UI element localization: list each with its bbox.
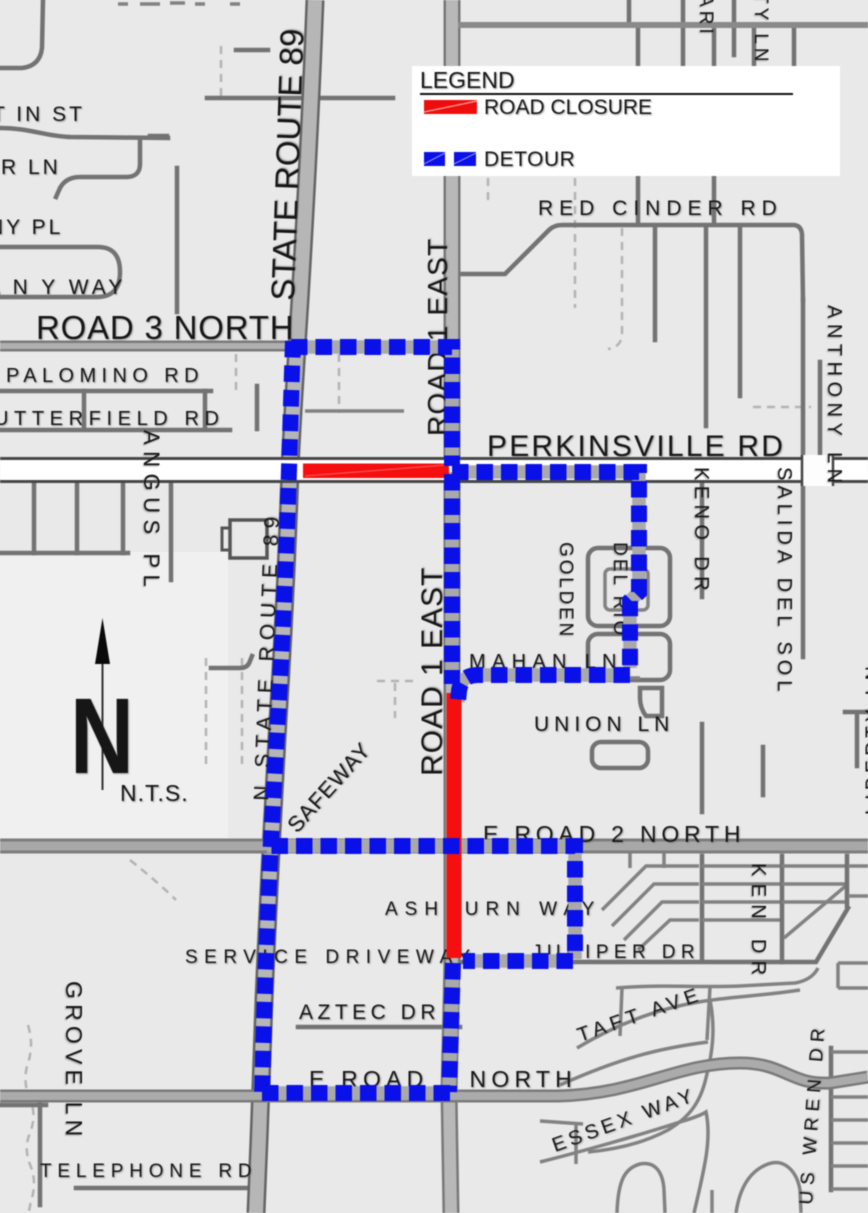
svg-text:KENO DR: KENO DR bbox=[690, 467, 712, 596]
svg-text:ANGUS PL: ANGUS PL bbox=[139, 430, 164, 593]
svg-text:ROAD 3 NORTH: ROAD 3 NORTH bbox=[36, 309, 294, 346]
svg-text:AZTEC DR: AZTEC DR bbox=[299, 1001, 440, 1024]
svg-text:LIBERTY LN: LIBERTY LN bbox=[863, 662, 868, 815]
svg-text:KEN DR: KEN DR bbox=[747, 863, 769, 982]
svg-text:ROAD CLOSURE: ROAD CLOSURE bbox=[484, 96, 652, 119]
svg-text:SALIDA DEL SOL: SALIDA DEL SOL bbox=[773, 467, 795, 696]
svg-text:DETOUR: DETOUR bbox=[484, 148, 575, 171]
svg-text:ANTHONY LN: ANTHONY LN bbox=[823, 305, 845, 489]
svg-text:PERKINSVILLE RD: PERKINSVILLE RD bbox=[487, 430, 785, 463]
svg-text:TY LN: TY LN bbox=[750, 0, 771, 66]
svg-text:SERVICE DRIVEWAY: SERVICE DRIVEWAY bbox=[185, 947, 477, 968]
svg-text:A N Y WAY: A N Y WAY bbox=[0, 276, 126, 299]
svg-text:NY PL: NY PL bbox=[0, 216, 63, 239]
svg-text:UTTERFIELD RD: UTTERFIELD RD bbox=[0, 408, 225, 430]
svg-text:GOLDEN: GOLDEN bbox=[555, 542, 576, 639]
svg-text:RED CINDER RD: RED CINDER RD bbox=[538, 197, 783, 220]
svg-text:T IN ST: T IN ST bbox=[0, 103, 85, 126]
svg-text:GROVE LN: GROVE LN bbox=[61, 981, 87, 1141]
svg-text:TELEPHONE RD: TELEPHONE RD bbox=[40, 1161, 257, 1182]
svg-text:N: N bbox=[70, 676, 134, 796]
svg-text:LEGEND: LEGEND bbox=[420, 67, 515, 93]
svg-text:ARI: ARI bbox=[695, 0, 716, 38]
svg-text:UNION LN: UNION LN bbox=[534, 713, 674, 736]
svg-text:N.T.S.: N.T.S. bbox=[120, 780, 189, 806]
svg-text:PALOMINO RD: PALOMINO RD bbox=[6, 365, 204, 387]
svg-text:ER LN: ER LN bbox=[0, 156, 61, 179]
